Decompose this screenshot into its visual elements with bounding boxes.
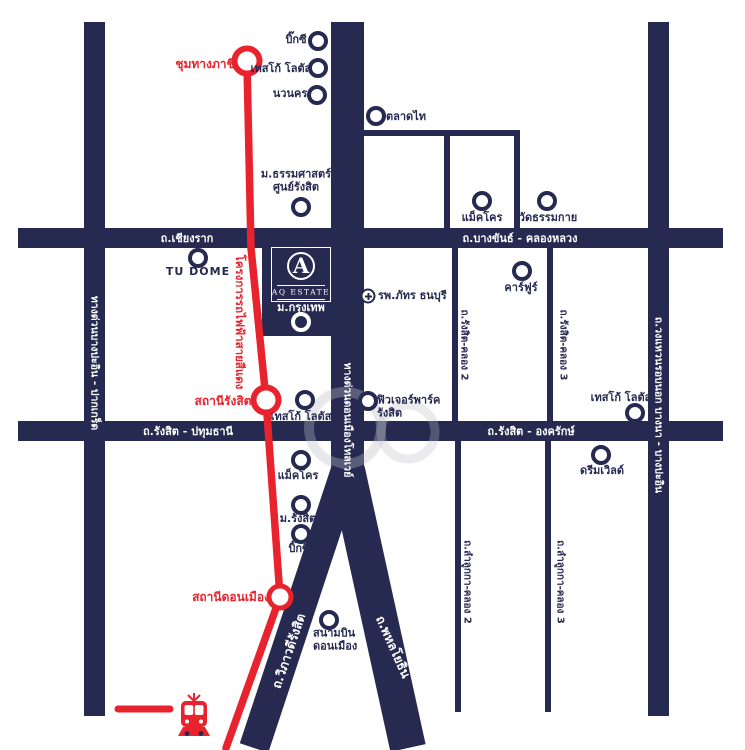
poi-label-makro-bottom: แม็คโคร — [278, 470, 319, 483]
poi-label-thammasat-line1: ม.ธรรมศาสตร์ — [241, 169, 351, 182]
poi-marker-future-park — [358, 391, 378, 411]
station-label-phachi-junction: ชุมทางภาชี — [175, 58, 234, 71]
poi-label-tesco-lotus-top: เทสโก้ โลตัส — [251, 63, 312, 76]
poi-label-tu-dome: TU DOME — [166, 266, 230, 279]
poi-marker-makro-top — [472, 191, 492, 211]
poi-marker-tesco-lotus-right — [625, 403, 645, 423]
road-label-lamlukka-khlong3: ถ.ลำลูกกา-คลอง 3 — [553, 540, 568, 624]
road-label-lamlukka-khlong2: ถ.ลำลูกกา-คลอง 2 — [460, 540, 475, 624]
road-label-rangsit-khlong3: ถ.รังสิต-คลอง 3 — [556, 309, 571, 380]
poi-label-bigc-top: บิ๊กซี — [285, 34, 306, 47]
poi-marker-dream-world — [591, 445, 611, 465]
poi-label-future-park-line2: รังสิต — [377, 407, 440, 420]
station-label-don-mueang: สถานีดอนเมือง — [192, 591, 270, 604]
poi-label-don-mueang-airport: สนามบิน ดอนเมือง — [313, 628, 357, 653]
road-label-rangsit-pathum: ถ.รังสิต - ปทุมธานี — [143, 422, 233, 440]
poi-marker-bigc-top — [308, 31, 328, 51]
poi-label-thammasat-line2: ศูนย์รังสิต — [241, 181, 351, 194]
poi-marker-nava-nakorn — [307, 85, 327, 105]
road-label-tollway: ทางด่วนดอนเมืองโทลเวย์ — [340, 363, 357, 478]
station-marker-don-mueang — [267, 584, 294, 611]
poi-marker-carrefour — [512, 261, 532, 281]
poi-label-bigc-bottom: บิ๊กซี — [288, 543, 309, 556]
station-label-rangsit: สถานีรังสิต — [195, 395, 252, 408]
poi-marker-makro-bottom — [291, 450, 311, 470]
road-label-outer-ring: ถ.วงแหวนรอบนอก บางนา - บางปะอิน — [651, 317, 668, 493]
poi-marker-talad-thai — [366, 106, 386, 126]
poi-label-tesco-lotus-rangsit: เทสโก้ โลตัส — [271, 411, 332, 424]
poi-label-future-park-line1: ฟิวเจอร์พาร์ค — [377, 395, 440, 408]
road-label-chiang-rak: ถ.เชียงราก — [161, 229, 214, 247]
poi-label-dream-world: ดรีมเวิลด์ — [580, 465, 624, 478]
poi-label-talad-thai: ตลาดไท — [386, 111, 426, 124]
poi-marker-wat-dhammakaya — [537, 191, 557, 211]
poi-label-airport-line1: สนามบิน — [313, 628, 357, 641]
poi-label-airport-line2: ดอนเมือง — [313, 640, 357, 653]
poi-label-makro-top: แม็คโคร — [462, 212, 503, 225]
road-label-rangsit-khlong2: ถ.รังสิต-คลอง 2 — [457, 309, 472, 380]
poi-label-patra-thonburi-hospital: รพ.ภัทร ธนบุรี — [378, 290, 447, 303]
poi-label-thammasat: ม.ธรรมศาสตร์ ศูนย์รังสิต — [241, 169, 351, 194]
road-label-bang-khan: ถ.บางขันธ์ - คลองหลวง — [463, 229, 578, 247]
red-line-project-label: โครงการรถไฟฟ้าสายสีแดง — [231, 255, 249, 390]
road-label-rangsit-ongkharak: ถ.รังสิต - องครักษ์ — [487, 422, 574, 440]
road-label-expressway-left: ทางด่วนบางปะอิน - ปากเกร็ด — [87, 296, 104, 430]
poi-label-wat-dhammakaya: วัดธรรมกาย — [519, 212, 577, 225]
hospital-icon — [361, 289, 376, 304]
poi-label-nava-nakorn: นวนคร — [273, 88, 307, 101]
location-map: A AQ ESTATE ถ.เชียงราก ถ.บางขันธ — [0, 0, 745, 750]
poi-marker-bangkok-university — [291, 312, 311, 332]
poi-marker-tesco-lotus-rangsit — [295, 390, 315, 410]
poi-label-carrefour: คาร์ฟูร์ — [504, 282, 537, 295]
road-phahonyothin-branch — [347, 470, 408, 748]
train-icon — [178, 693, 210, 736]
poi-label-future-park: ฟิวเจอร์พาร์ค รังสิต — [377, 395, 440, 420]
poi-marker-thammasat — [291, 197, 311, 217]
poi-label-tesco-lotus-right: เทสโก้ โลตัส — [591, 392, 652, 405]
